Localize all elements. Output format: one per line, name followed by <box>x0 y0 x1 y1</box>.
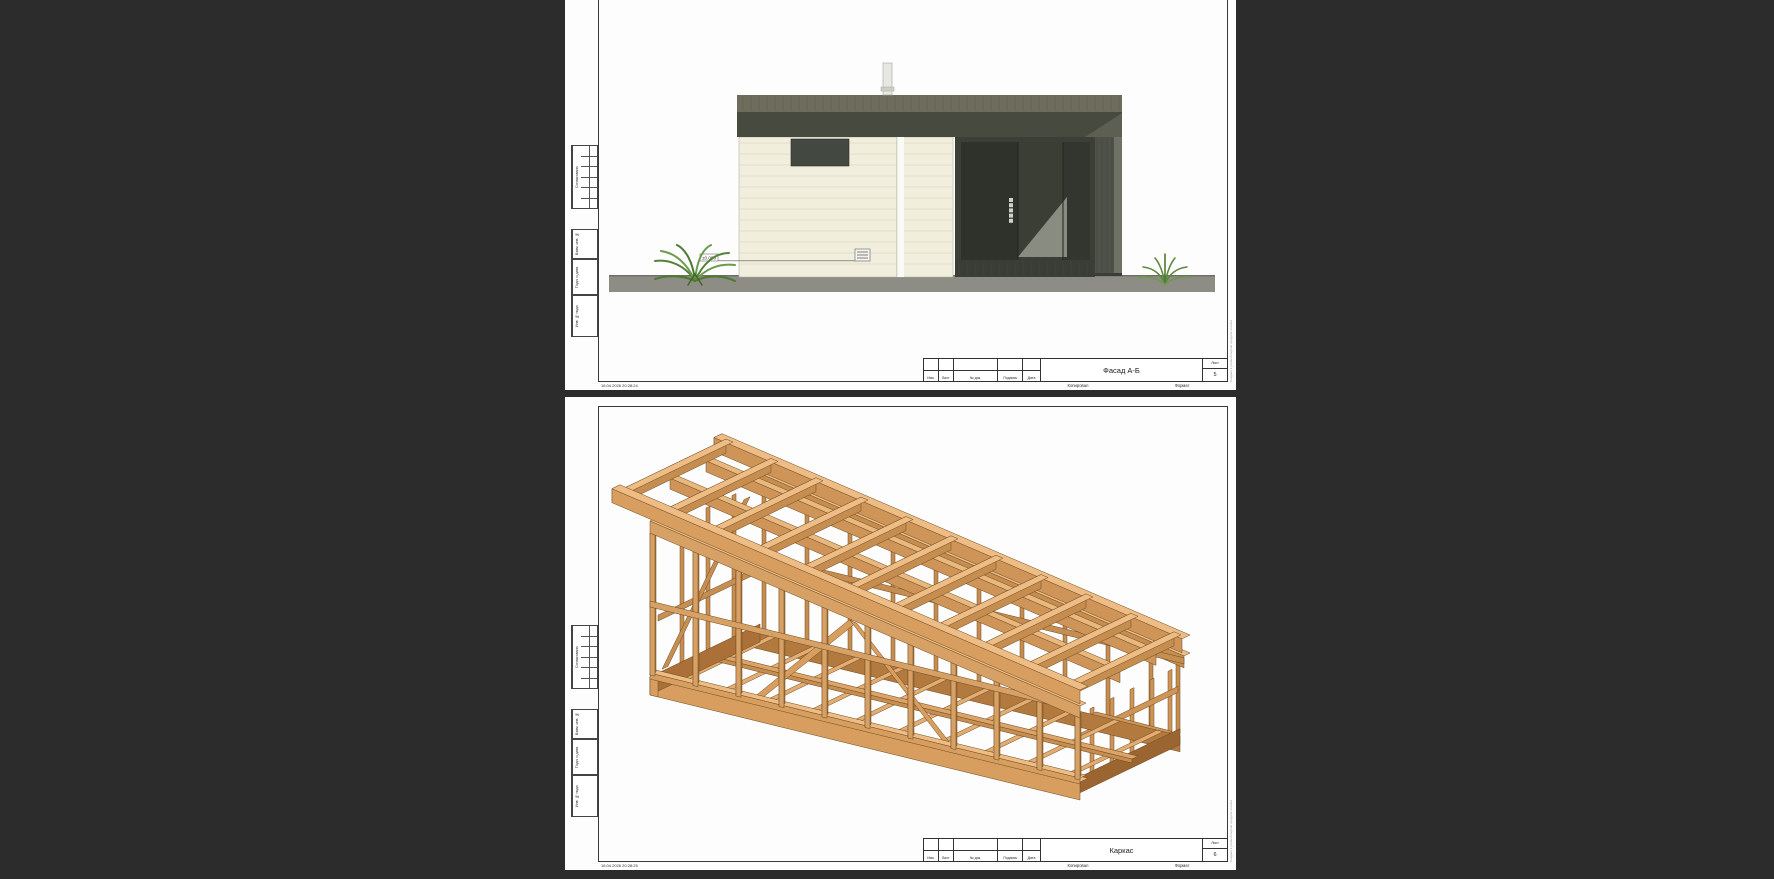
stamp-approval-grid <box>581 626 597 688</box>
stamp-approval-box: Согласовано <box>571 625 598 689</box>
education-watermark: Создано в учебной версии продукта Autode… <box>1229 800 1233 862</box>
sheet-number-cell: Лист 5 <box>1203 359 1227 381</box>
copied-label: Копировал <box>1043 863 1113 868</box>
title-block: Изм. Лист № док. Подпись Дата Фасад А-Б … <box>923 358 1228 382</box>
stamp-vzam-label: Взам. инв. № <box>572 710 581 738</box>
vent-grille <box>855 249 870 261</box>
stamp-vzam-box: Взам. инв. № <box>571 709 598 739</box>
stamp-approval-grid <box>581 146 597 208</box>
title-block-columns: Изм. Лист № док. Подпись Дата <box>924 359 1041 381</box>
drawing-title: Фасад А-Б <box>1041 359 1203 381</box>
stamp-inv-box: Инв. № подл. <box>571 295 598 337</box>
dark-canvas-background: Согласовано Взам. инв. № Подп. и дата Ин… <box>0 0 1774 879</box>
title-block-columns: Изм. Лист № док. Подпись Дата <box>924 839 1041 861</box>
right-dark-siding <box>1095 137 1122 273</box>
stamp-podp-label: Подп. и дата <box>572 260 581 294</box>
facade-elevation-drawing: ±0.000 <box>605 47 1225 297</box>
corner-trim <box>897 137 904 277</box>
roof-fascia <box>737 112 1122 137</box>
sheet-frame-iso: Согласовано Взам. инв. № Подп. и дата Ин… <box>565 397 1236 870</box>
format-label: Формат <box>1157 383 1207 388</box>
stamp-approval-label: Согласовано <box>572 146 581 208</box>
print-datestamp: 16.04.2026 20:28:25 <box>601 863 638 868</box>
format-label: Формат <box>1157 863 1207 868</box>
stamp-vzam-label: Взам. инв. № <box>572 230 581 258</box>
stamp-approval-box: Согласовано <box>571 145 598 209</box>
stamp-vzam-box: Взам. инв. № <box>571 229 598 259</box>
stamp-podp-label: Подп. и дата <box>572 740 581 774</box>
drawing-title: Каркас <box>1041 839 1203 861</box>
stamp-approval-label: Согласовано <box>572 626 581 688</box>
education-watermark: Создано в учебной версии продукта Autode… <box>1229 320 1233 382</box>
stamp-inv-label: Инв. № подл. <box>572 296 581 336</box>
print-datestamp: 16.04.2026 20:28:24 <box>601 383 638 388</box>
sheet-facade: Согласовано Взам. инв. № Подп. и дата Ин… <box>565 0 1236 390</box>
ground-bar <box>609 275 1215 292</box>
title-block: Изм. Лист № док. Подпись Дата Каркас Лис… <box>923 838 1228 862</box>
stamp-inv-label: Инв. № подл. <box>572 776 581 816</box>
chimney-pipe <box>881 63 894 95</box>
timber-frame-isometric-drawing <box>605 422 1205 817</box>
sheet-number-cell: Лист 6 <box>1203 839 1227 861</box>
stamp-podp-box: Подп. и дата <box>571 259 598 295</box>
stamp-inv-box: Инв. № подл. <box>571 775 598 817</box>
door-sign-glyphs <box>1009 198 1013 223</box>
copied-label: Копировал <box>1043 383 1113 388</box>
roof-band <box>737 95 1122 112</box>
stamp-podp-box: Подп. и дата <box>571 739 598 775</box>
window <box>791 139 849 166</box>
